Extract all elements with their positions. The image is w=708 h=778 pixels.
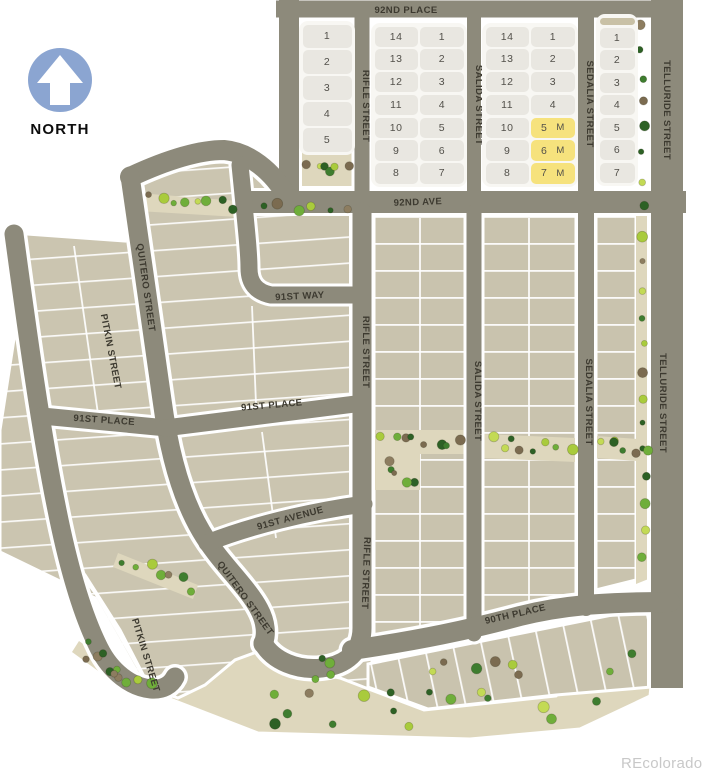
tree-icon: [421, 442, 427, 448]
tree-icon: [620, 448, 626, 454]
tree-icon: [542, 438, 550, 446]
lot-cell: 2: [420, 49, 463, 69]
tree-icon: [180, 198, 189, 207]
tree-icon: [165, 571, 172, 578]
lot-cell: 7: [600, 163, 635, 183]
street-label-92nd-place: 92ND PLACE: [374, 5, 437, 16]
tree-icon: [171, 200, 177, 206]
street-label-rifle-street-north: RIFLE STREET: [360, 70, 371, 142]
tree-icon: [133, 564, 139, 570]
lot-block-d: 1234567: [596, 14, 638, 186]
tree-icon: [134, 676, 142, 684]
tree-icon: [477, 688, 485, 696]
tree-icon: [643, 446, 652, 455]
tree-icon: [328, 208, 333, 213]
tree-icon: [402, 478, 412, 488]
tree-icon: [485, 695, 492, 702]
tree-icon: [99, 650, 107, 658]
lot-cell: 9: [375, 140, 418, 160]
lot-cell: 4: [531, 95, 574, 115]
tree-icon: [508, 436, 514, 442]
tree-icon: [294, 206, 304, 216]
lot-cell: 3: [420, 72, 463, 92]
lot-cell: 11: [486, 95, 529, 115]
tree-icon: [592, 697, 600, 705]
tree-icon: [195, 199, 201, 205]
tree-icon: [642, 472, 650, 480]
tree-icon: [391, 708, 397, 714]
north-arrow-icon: [26, 46, 94, 114]
lot-cell: 10: [375, 118, 418, 138]
lot-cell: 1: [600, 28, 635, 48]
lot-cell: 7: [420, 163, 463, 183]
lot-cell: 5M: [531, 118, 574, 138]
tree-icon: [312, 676, 319, 683]
tree-icon: [385, 457, 394, 466]
tree-icon: [640, 201, 649, 210]
tree-icon: [489, 432, 499, 442]
lot-cell: 2: [303, 50, 352, 73]
tree-icon: [530, 449, 536, 455]
lot-cell: 1: [303, 25, 352, 48]
tree-icon: [122, 678, 131, 687]
tree-icon: [319, 655, 326, 662]
lot-cell: 4: [600, 95, 635, 115]
lot-cell: 5: [303, 128, 352, 151]
lot-cell: 7M: [531, 163, 574, 183]
tree-icon: [392, 470, 397, 475]
street-label-rifle-street-mid: RIFLE STREET: [360, 316, 371, 388]
north-indicator: NORTH: [26, 46, 94, 138]
lot-cell: 6M: [531, 140, 574, 160]
tree-icon: [440, 659, 447, 666]
lot-cell: 13: [486, 49, 529, 69]
tree-icon: [639, 97, 647, 105]
tree-icon: [640, 258, 645, 263]
tree-icon: [547, 714, 557, 724]
lot-block-a: 12345: [299, 21, 355, 155]
tree-icon: [270, 718, 281, 729]
tree-icon: [261, 203, 267, 209]
tree-icon: [640, 76, 647, 83]
tree-icon: [327, 671, 335, 679]
lot-cell: 1: [531, 27, 574, 47]
lot-block-b: 1411321231141059687: [371, 23, 467, 187]
tree-icon: [387, 689, 394, 696]
tree-icon: [508, 660, 517, 669]
tree-icon: [325, 658, 335, 668]
block-sedalia-telluride-lotlines: [596, 216, 636, 590]
lot-block-c: 141132123114105M96M87M: [482, 23, 578, 187]
lot-cell: 11: [375, 95, 418, 115]
tree-icon: [598, 438, 605, 445]
lot-cell: 13: [375, 49, 418, 69]
tree-icon: [394, 433, 402, 441]
tree-icon: [639, 395, 647, 403]
tree-icon: [156, 570, 166, 580]
tree-icon: [538, 701, 549, 712]
lot-cell: 9: [486, 140, 529, 160]
lot-cell-suffix: M: [556, 122, 564, 133]
tree-icon: [639, 288, 646, 295]
lot-cell: 3: [531, 72, 574, 92]
tree-icon: [147, 559, 157, 569]
lot-cell: 12: [375, 72, 418, 92]
tree-icon: [515, 671, 523, 679]
tree-icon: [639, 315, 645, 321]
tree-icon: [639, 179, 646, 186]
tree-icon: [305, 689, 314, 698]
tree-icon: [515, 446, 523, 454]
tree-icon: [146, 192, 152, 198]
tree-icon: [641, 340, 647, 346]
lot-cell: 14: [375, 27, 418, 47]
tree-icon: [455, 435, 465, 445]
tree-icon: [640, 499, 650, 509]
tree-icon: [640, 121, 650, 131]
lot-cell: 2: [600, 50, 635, 70]
tree-icon: [307, 202, 316, 211]
tree-icon: [628, 650, 636, 658]
lot-cell: 2: [531, 49, 574, 69]
tree-icon: [610, 438, 619, 447]
tree-icon: [443, 442, 449, 448]
tree-icon: [426, 689, 432, 695]
tree-icon: [490, 657, 500, 667]
lot-cell: 10: [486, 118, 529, 138]
tree-icon: [187, 588, 195, 596]
tree-icon: [159, 193, 169, 203]
tree-icon: [637, 231, 648, 242]
tree-icon: [179, 572, 188, 581]
street-label-92nd-ave: 92ND AVE: [393, 196, 442, 209]
lot-cell: 4: [303, 102, 352, 125]
lot-cell: 4: [420, 95, 463, 115]
tree-icon: [219, 196, 227, 204]
tree-icon: [632, 449, 641, 458]
lot-cell: 8: [375, 163, 418, 183]
tree-icon: [111, 670, 118, 677]
tree-icon: [568, 444, 579, 455]
lot-cell: 12: [486, 72, 529, 92]
tree-icon: [637, 553, 646, 562]
tree-icon: [302, 160, 311, 169]
tree-icon: [228, 205, 237, 214]
tree-icon: [270, 690, 279, 699]
tree-icon: [345, 162, 354, 171]
lot-cell: 5: [420, 118, 463, 138]
tree-icon: [201, 196, 211, 206]
tree-icon: [446, 694, 456, 704]
tree-icon: [358, 690, 370, 702]
tree-icon: [640, 420, 645, 425]
plat-map: 92ND PLACE92ND AVERIFLE STREETSALIDA STR…: [0, 0, 708, 778]
tree-icon: [331, 163, 338, 170]
tree-icon: [86, 639, 92, 645]
lot-cell: 3: [600, 73, 635, 93]
lot-cell: 14: [486, 27, 529, 47]
tree-icon: [405, 722, 413, 730]
street-label-sedalia-street-mid: SEDALIA STREET: [583, 358, 594, 445]
tree-icon: [408, 434, 414, 440]
tree-icon: [641, 526, 649, 534]
lot-cell: 6: [420, 140, 463, 160]
tree-icon: [638, 368, 648, 378]
tree-icon: [283, 709, 292, 718]
lot-cell: 6: [600, 140, 635, 160]
tree-icon: [638, 149, 644, 155]
tree-icon: [119, 560, 125, 566]
tree-icon: [553, 444, 559, 450]
watermark: REcolorado: [621, 755, 702, 772]
tree-icon: [272, 198, 283, 209]
tree-icon: [376, 432, 384, 440]
tree-icon: [606, 668, 613, 675]
north-label: NORTH: [26, 121, 94, 138]
lot-cell: 1: [420, 27, 463, 47]
street-label-telluride-street-mid: TELLURIDE STREET: [657, 353, 668, 453]
street-label-telluride-street-north: TELLURIDE STREET: [661, 60, 672, 160]
lot-cell: 8: [486, 163, 529, 183]
street-label-sedalia-street-north: SEDALIA STREET: [584, 60, 595, 147]
tree-icon: [329, 721, 336, 728]
tree-icon: [429, 668, 436, 675]
lot-cell: [600, 18, 635, 26]
lot-cell: 5: [600, 118, 635, 138]
tree-icon: [471, 663, 482, 674]
lot-cell-suffix: M: [556, 168, 564, 179]
tree-icon: [501, 445, 508, 452]
tree-icon: [83, 656, 90, 663]
lot-cell: 3: [303, 76, 352, 99]
street-label-salida-street-mid: SALIDA STREET: [472, 361, 483, 441]
lot-cell-suffix: M: [556, 145, 564, 156]
tree-icon: [344, 205, 352, 213]
